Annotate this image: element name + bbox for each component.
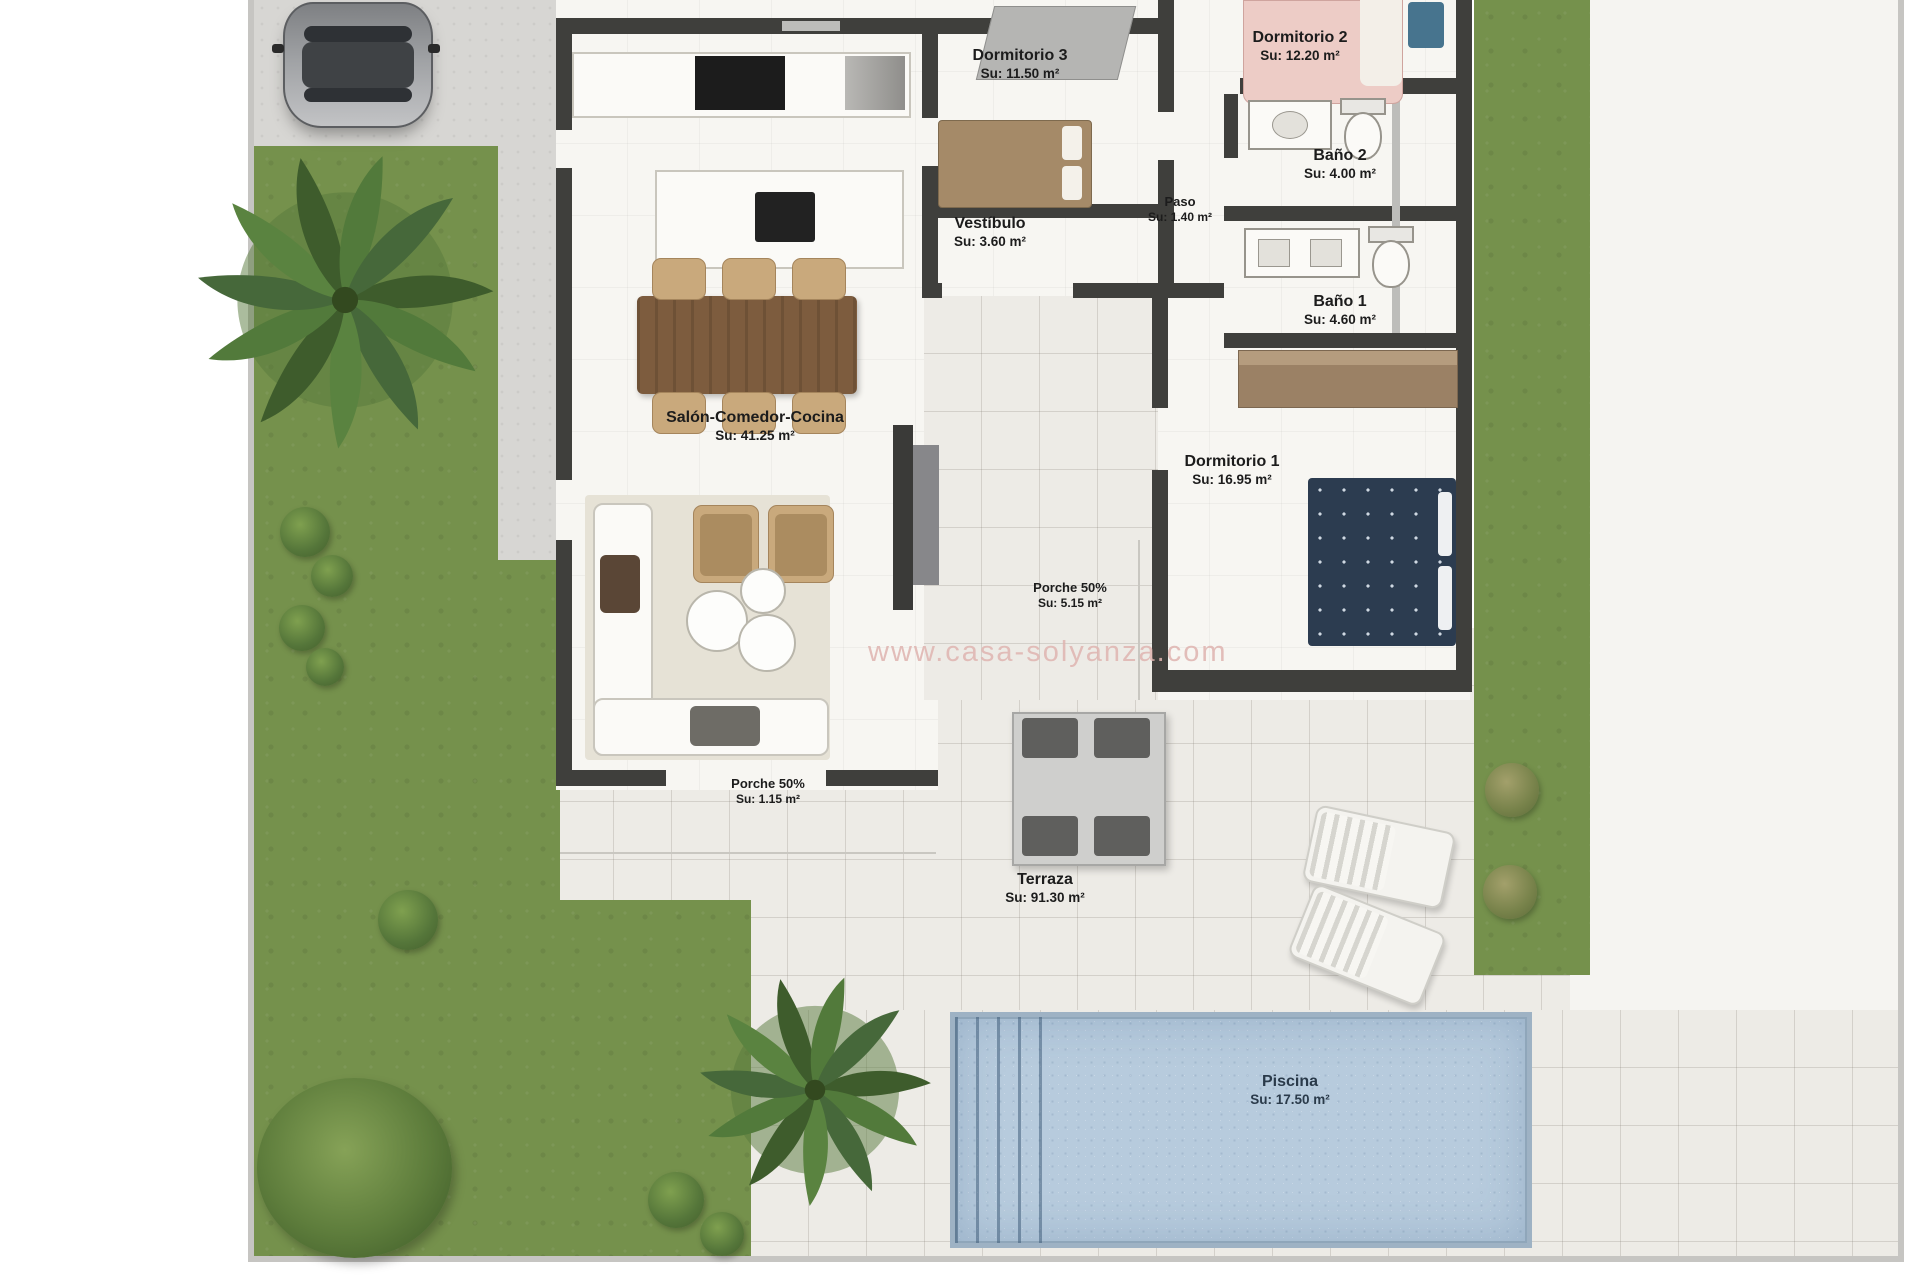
room-name: Paso bbox=[1148, 194, 1212, 210]
room-name: Piscina bbox=[1250, 1072, 1330, 1092]
wall-paso-right bbox=[1224, 94, 1238, 158]
coffee-table bbox=[740, 568, 786, 614]
room-label-paso: Paso Su: 1.40 m² bbox=[1148, 194, 1212, 225]
room-name: Porche 50% bbox=[1033, 580, 1107, 596]
wall-living-divider-1 bbox=[922, 18, 938, 118]
wall-right-outer bbox=[1456, 0, 1472, 692]
room-area: Su: 91.30 m² bbox=[1005, 890, 1085, 907]
room-name: Baño 2 bbox=[1304, 146, 1376, 166]
wall-bano1-bottom bbox=[1224, 333, 1470, 348]
room-label-bano-1: Baño 1 Su: 4.60 m² bbox=[1304, 292, 1376, 329]
dining-chair bbox=[652, 258, 706, 300]
room-label-vestibulo: Vestíbulo Su: 3.60 m² bbox=[954, 214, 1026, 251]
plot-border-right bbox=[1898, 0, 1904, 1262]
kitchen-sink-cabinet bbox=[845, 56, 905, 110]
bano1-double-sink bbox=[1244, 228, 1360, 278]
room-area: Su: 1.15 m² bbox=[731, 792, 805, 807]
dorm3-pillow bbox=[1062, 166, 1082, 200]
palm-tree-large bbox=[185, 140, 505, 460]
room-label-dormitorio-1: Dormitorio 1 Su: 16.95 m² bbox=[1184, 452, 1279, 489]
room-label-porche-oeste: Porche 50% Su: 1.15 m² bbox=[731, 776, 805, 807]
room-area: Su: 16.95 m² bbox=[1184, 472, 1279, 489]
tv-wall bbox=[893, 425, 913, 610]
wall-living-bottom-2 bbox=[826, 770, 938, 786]
room-area: Su: 4.00 m² bbox=[1304, 166, 1376, 183]
room-label-terraza: Terraza Su: 91.30 m² bbox=[1005, 870, 1085, 907]
armchair bbox=[768, 505, 834, 583]
bush bbox=[648, 1172, 704, 1228]
bush bbox=[700, 1212, 744, 1256]
bush-olive bbox=[1485, 763, 1539, 817]
dorm2-sheet bbox=[1360, 0, 1402, 86]
window-top bbox=[782, 21, 840, 31]
dining-table bbox=[637, 296, 857, 394]
coffee-table bbox=[738, 614, 796, 672]
bano2-sink bbox=[1248, 100, 1332, 150]
bano1-toilet-bowl bbox=[1372, 240, 1410, 288]
room-name: Baño 1 bbox=[1304, 292, 1376, 312]
car-mirror bbox=[428, 44, 440, 53]
outdoor-chair bbox=[1094, 718, 1150, 758]
room-area: Su: 5.15 m² bbox=[1033, 596, 1107, 611]
room-name: Terraza bbox=[1005, 870, 1085, 890]
room-name: Vestíbulo bbox=[954, 214, 1026, 234]
pool-steps bbox=[955, 1017, 1059, 1243]
dorm1-pillow bbox=[1438, 492, 1452, 556]
wall-entry-left-stub bbox=[922, 283, 942, 298]
room-label-dormitorio-2: Dormitorio 2 Su: 12.20 m² bbox=[1252, 28, 1347, 65]
wall-dorm1-left-1 bbox=[1152, 298, 1168, 408]
bush bbox=[279, 605, 325, 651]
wall-entry bbox=[1073, 283, 1224, 298]
room-name: Dormitorio 2 bbox=[1252, 28, 1347, 48]
wall-dorm3-right-1 bbox=[1158, 0, 1174, 112]
room-name: Porche 50% bbox=[731, 776, 805, 792]
outdoor-chair bbox=[1094, 816, 1150, 856]
car-mirror bbox=[272, 44, 284, 53]
bush bbox=[280, 507, 330, 557]
room-name: Salón-Comedor-Cocina bbox=[666, 408, 844, 428]
bano1-basin bbox=[1258, 239, 1290, 267]
dorm3-pillow bbox=[1062, 126, 1082, 160]
room-label-bano-2: Baño 2 Su: 4.00 m² bbox=[1304, 146, 1376, 183]
porch-line-center bbox=[1138, 540, 1140, 700]
room-label-dormitorio-3: Dormitorio 3 Su: 11.50 m² bbox=[972, 46, 1067, 83]
bush bbox=[311, 555, 353, 597]
dorm1-wardrobe bbox=[1238, 350, 1458, 408]
sofa-throw bbox=[600, 555, 640, 613]
room-label-porche-centro: Porche 50% Su: 5.15 m² bbox=[1033, 580, 1107, 611]
lounger-slats bbox=[1309, 811, 1397, 891]
lawn-right-strip bbox=[1474, 0, 1590, 975]
car bbox=[283, 2, 433, 128]
plot-border-bottom bbox=[248, 1256, 1904, 1262]
wall-living-bottom-1 bbox=[556, 770, 666, 786]
watermark: www.casa-solyanza.com bbox=[868, 636, 1228, 669]
wall-living-divider-2 bbox=[922, 166, 938, 298]
wall-left-3 bbox=[556, 540, 572, 786]
room-name: Dormitorio 1 bbox=[1184, 452, 1279, 472]
swimming-pool bbox=[950, 1012, 1532, 1248]
wall-dorm1-bottom bbox=[1152, 670, 1470, 692]
room-area: Su: 4.60 m² bbox=[1304, 312, 1376, 329]
bush bbox=[378, 890, 438, 950]
outdoor-chair bbox=[1022, 816, 1078, 856]
room-area: Su: 1.40 m² bbox=[1148, 210, 1212, 225]
room-area: Su: 12.20 m² bbox=[1252, 48, 1347, 65]
wall-bath-divider bbox=[1224, 206, 1470, 221]
dorm2-nightstand bbox=[1408, 2, 1444, 48]
room-area: Su: 41.25 m² bbox=[666, 428, 844, 445]
car-rear-window bbox=[304, 26, 412, 42]
room-area: Su: 3.60 m² bbox=[954, 234, 1026, 251]
armchair-seat bbox=[700, 514, 752, 576]
bush bbox=[306, 648, 344, 686]
porch-line-west bbox=[560, 852, 936, 854]
wall-bath-partition bbox=[1392, 94, 1400, 333]
wall-left-1 bbox=[556, 18, 572, 130]
dorm1-pillow bbox=[1438, 566, 1452, 630]
wall-dorm3-right-2 bbox=[1158, 160, 1174, 298]
car-roof bbox=[302, 42, 414, 88]
dining-chair bbox=[722, 258, 776, 300]
outdoor-chair bbox=[1022, 718, 1078, 758]
room-label-piscina: Piscina Su: 17.50 m² bbox=[1250, 1072, 1330, 1109]
round-tree bbox=[257, 1078, 452, 1258]
bano2-basin bbox=[1272, 111, 1308, 139]
island-sink bbox=[755, 192, 815, 242]
car-windshield bbox=[304, 88, 412, 102]
floor-plan: www.casa-solyanza.com Dormitorio 3 Su: 1… bbox=[0, 0, 1920, 1280]
bush-olive bbox=[1483, 865, 1537, 919]
room-name: Dormitorio 3 bbox=[972, 46, 1067, 66]
room-area: Su: 11.50 m² bbox=[972, 66, 1067, 83]
bano1-basin bbox=[1310, 239, 1342, 267]
tv-unit bbox=[913, 445, 939, 585]
wall-left-2 bbox=[556, 168, 572, 480]
sofa-throw bbox=[690, 706, 760, 746]
room-area: Su: 17.50 m² bbox=[1250, 1092, 1330, 1109]
room-label-salon: Salón-Comedor-Cocina Su: 41.25 m² bbox=[666, 408, 844, 445]
cooktop bbox=[695, 56, 785, 110]
dorm1-bed bbox=[1308, 478, 1456, 646]
armchair-seat bbox=[775, 514, 827, 576]
palm-tree-small bbox=[690, 965, 940, 1215]
dining-chair bbox=[792, 258, 846, 300]
